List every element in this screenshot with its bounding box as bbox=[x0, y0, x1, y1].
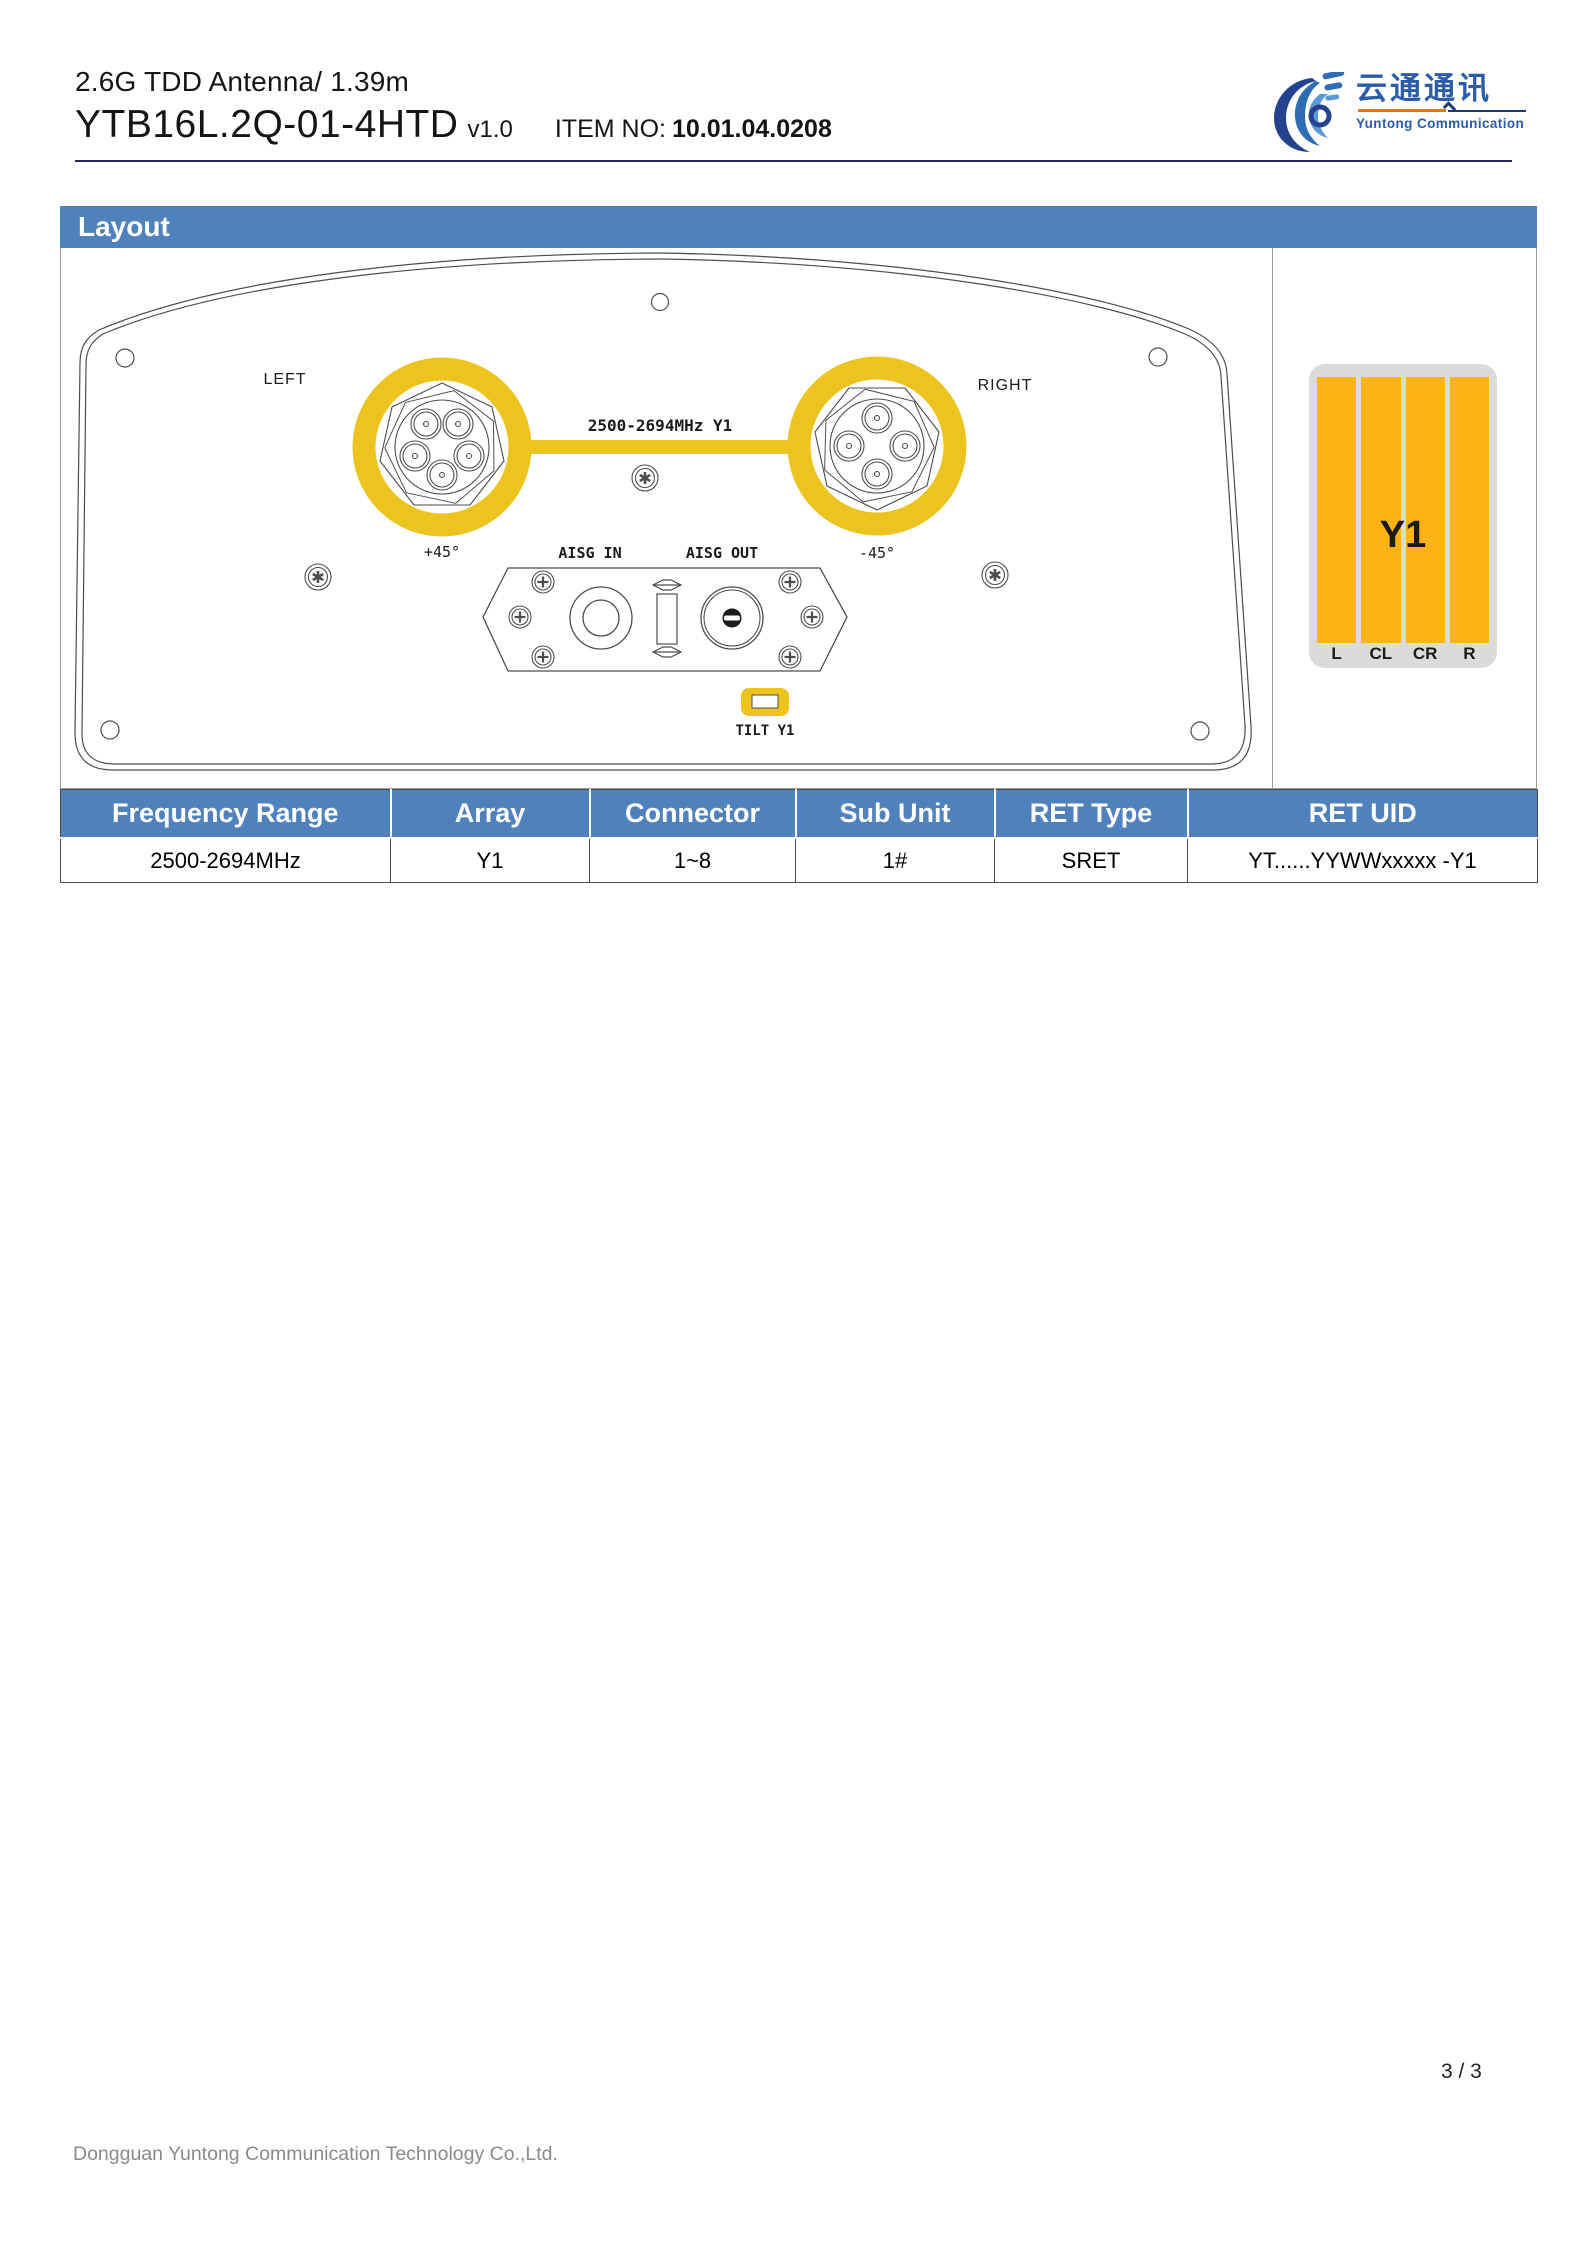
datasheet-page: 2.6G TDD Antenna/ 1.39m YTB16L.2Q-01-4HT… bbox=[0, 0, 1587, 2245]
pin bbox=[454, 441, 484, 471]
phillips-screw bbox=[779, 571, 801, 593]
table-row: 2500-2694MHz Y1 1~8 1# SRET YT......YYWW… bbox=[61, 838, 1538, 883]
model-number: YTB16L.2Q-01-4HTD bbox=[75, 103, 458, 146]
hole-top-center bbox=[652, 294, 669, 311]
pin bbox=[411, 409, 441, 439]
array-name: Y1 bbox=[1309, 514, 1497, 557]
logo-swirl-icon bbox=[1268, 72, 1348, 156]
phillips-screw bbox=[532, 646, 554, 668]
torx-screw bbox=[632, 465, 658, 491]
title-block: 2.6G TDD Antenna/ 1.39m YTB16L.2Q-01-4HT… bbox=[75, 66, 832, 147]
array-column-r bbox=[1450, 377, 1489, 643]
port-label-cl: CL bbox=[1361, 644, 1400, 664]
item-no-label: ITEM NO: bbox=[555, 115, 666, 143]
array-columns bbox=[1317, 377, 1489, 643]
pin bbox=[427, 460, 457, 490]
phillips-screw bbox=[801, 606, 823, 628]
array-port-labels: L CL CR R bbox=[1317, 644, 1489, 664]
layout-section-header: Layout bbox=[60, 206, 1537, 248]
model-version: v1.0 bbox=[467, 116, 512, 143]
hole-top-right bbox=[1149, 348, 1167, 366]
pin bbox=[400, 441, 430, 471]
hole-top-left bbox=[116, 349, 134, 367]
torx-screw bbox=[305, 564, 331, 590]
col-connector: Connector bbox=[590, 790, 796, 839]
pin bbox=[862, 459, 892, 489]
cell-connector: 1~8 bbox=[590, 838, 796, 883]
port-label-r: R bbox=[1450, 644, 1489, 664]
col-frequency-range: Frequency Range bbox=[61, 790, 391, 839]
antenna-bottom-drawing: 2500-2694MHz Y1 bbox=[60, 248, 1272, 789]
cell-array: Y1 bbox=[391, 838, 590, 883]
hole-bottom-left bbox=[101, 721, 119, 739]
right-label: RIGHT bbox=[978, 377, 1033, 394]
footer: Dongguan Yuntong Communication Technolog… bbox=[73, 2072, 1413, 2245]
logo-name-cn: 云通通讯 bbox=[1356, 72, 1524, 106]
aisg-out-label: AISG OUT bbox=[686, 544, 758, 562]
cell-ret-uid: YT......YYWWxxxxx -Y1 bbox=[1188, 838, 1538, 883]
col-array: Array bbox=[391, 790, 590, 839]
logo-underline bbox=[1356, 107, 1524, 113]
cell-sub-unit: 1# bbox=[796, 838, 995, 883]
model-line: YTB16L.2Q-01-4HTDv1.0ITEM NO:10.01.04.02… bbox=[75, 103, 832, 147]
pin bbox=[862, 403, 892, 433]
array-column-cl bbox=[1361, 377, 1400, 643]
right-port bbox=[799, 368, 955, 524]
col-ret-uid: RET UID bbox=[1188, 790, 1538, 839]
torx-screw bbox=[982, 562, 1008, 588]
minus45-label: -45° bbox=[859, 544, 895, 562]
left-label: LEFT bbox=[263, 371, 306, 388]
array-column-l bbox=[1317, 377, 1356, 643]
aisg-in-connector bbox=[570, 587, 632, 649]
footer-company: Dongguan Yuntong Communication Technolog… bbox=[73, 2138, 1413, 2171]
pin bbox=[890, 431, 920, 461]
port-label-l: L bbox=[1317, 644, 1356, 664]
array-column-cr bbox=[1406, 377, 1445, 643]
cell-ret-type: SRET bbox=[995, 838, 1188, 883]
footer-contact-line: http://www.yuntongdg.comAdd：13 Jinfu Ave… bbox=[73, 2237, 1413, 2245]
layout-section-title: Layout bbox=[60, 206, 170, 248]
table-header-row: Frequency Range Array Connector Sub Unit… bbox=[61, 790, 1538, 839]
aisg-in-label: AISG IN bbox=[558, 544, 621, 562]
port-label-cr: CR bbox=[1406, 644, 1445, 664]
phillips-screw bbox=[779, 646, 801, 668]
radome-outline-inner bbox=[82, 259, 1245, 764]
cell-frequency-range: 2500-2694MHz bbox=[61, 838, 391, 883]
plus45-label: +45° bbox=[424, 543, 460, 561]
logo-text: 云通通讯 Yuntong Communication bbox=[1356, 72, 1524, 131]
phillips-screw bbox=[509, 606, 531, 628]
col-sub-unit: Sub Unit bbox=[796, 790, 995, 839]
ret-spec-table: Frequency Range Array Connector Sub Unit… bbox=[60, 789, 1538, 883]
header-divider bbox=[75, 160, 1512, 162]
band-label: 2500-2694MHz Y1 bbox=[588, 416, 733, 435]
page-number: 3 / 3 bbox=[1441, 2060, 1482, 2084]
col-ret-type: RET Type bbox=[995, 790, 1188, 839]
array-panel: Y1 L CL CR R bbox=[1309, 364, 1497, 668]
hole-bottom-right bbox=[1191, 722, 1209, 740]
radome-outline-outer bbox=[75, 253, 1251, 770]
array-side-box: Y1 L CL CR R bbox=[1272, 248, 1537, 789]
pin bbox=[834, 431, 864, 461]
band-bar bbox=[530, 440, 790, 454]
logo-name-en: Yuntong Communication bbox=[1356, 116, 1524, 131]
tilt-label: TILT Y1 bbox=[735, 723, 794, 739]
antenna-drawing-svg: 2500-2694MHz Y1 bbox=[61, 248, 1272, 787]
pin bbox=[443, 409, 473, 439]
phillips-screw bbox=[532, 571, 554, 593]
aisg-out-connector bbox=[701, 587, 763, 649]
product-title: 2.6G TDD Antenna/ 1.39m bbox=[75, 66, 832, 98]
item-no-value: 10.01.04.0208 bbox=[672, 115, 832, 143]
left-port bbox=[364, 369, 520, 525]
tilt-window bbox=[741, 688, 789, 716]
company-logo: 云通通讯 Yuntong Communication bbox=[1268, 72, 1524, 156]
